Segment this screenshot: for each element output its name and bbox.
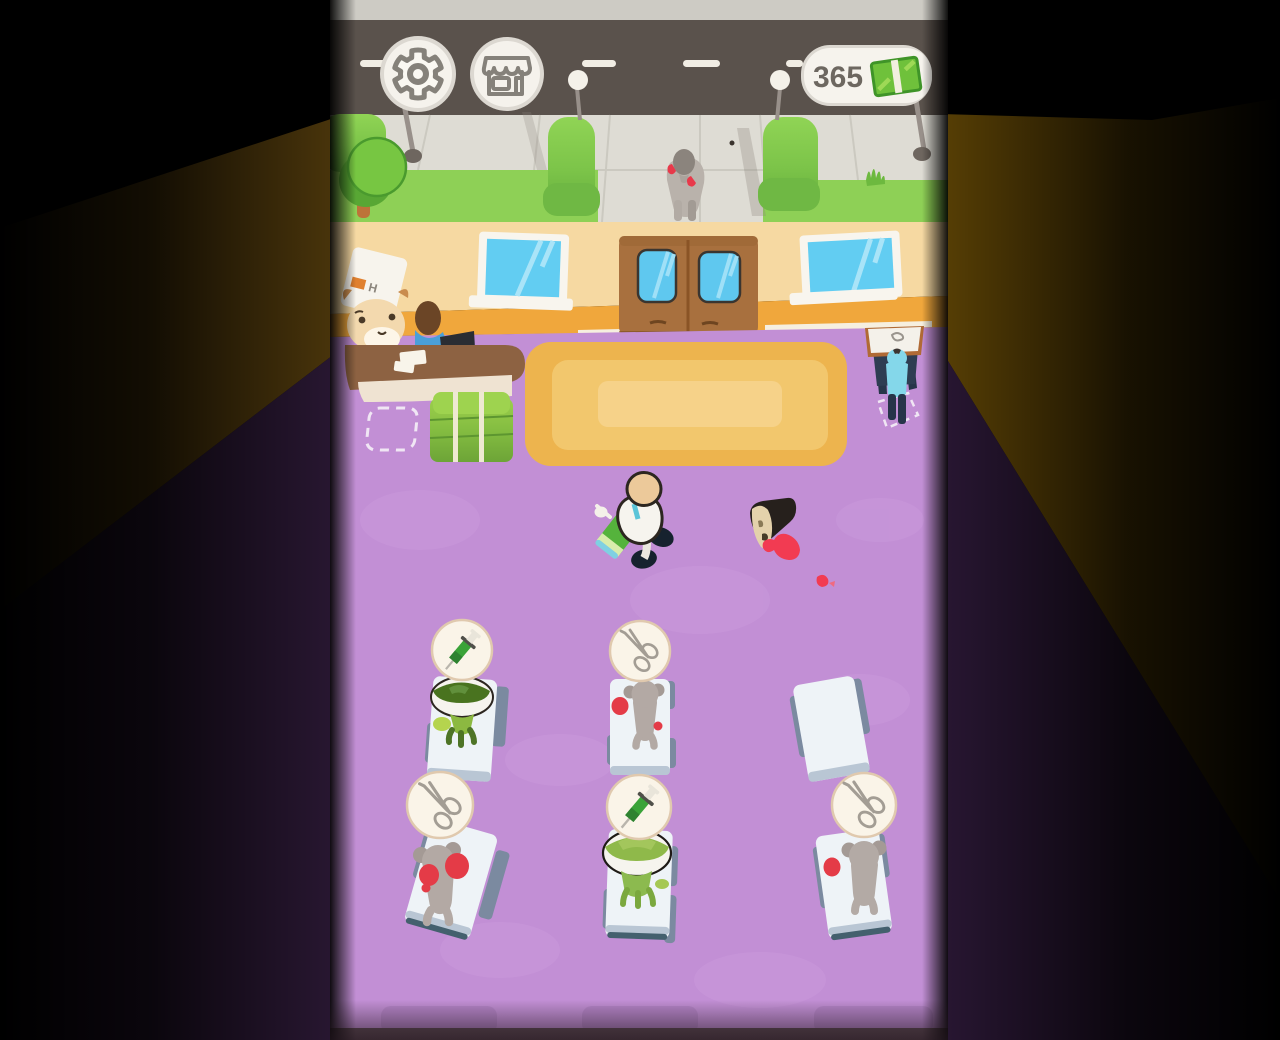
svg-text:365: 365 xyxy=(813,61,863,94)
